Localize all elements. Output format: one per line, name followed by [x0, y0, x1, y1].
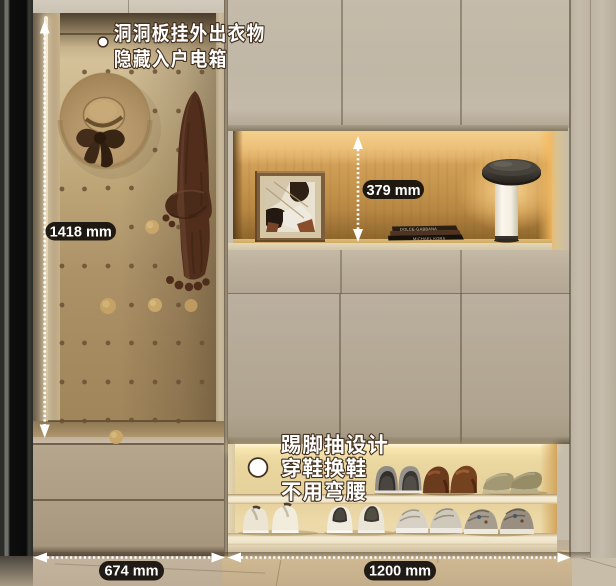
svg-text:1200 mm: 1200 mm — [369, 564, 431, 580]
svg-text:379 mm: 379 mm — [366, 183, 420, 199]
svg-text:1418 mm: 1418 mm — [50, 225, 112, 241]
svg-text:674 mm: 674 mm — [104, 564, 158, 580]
